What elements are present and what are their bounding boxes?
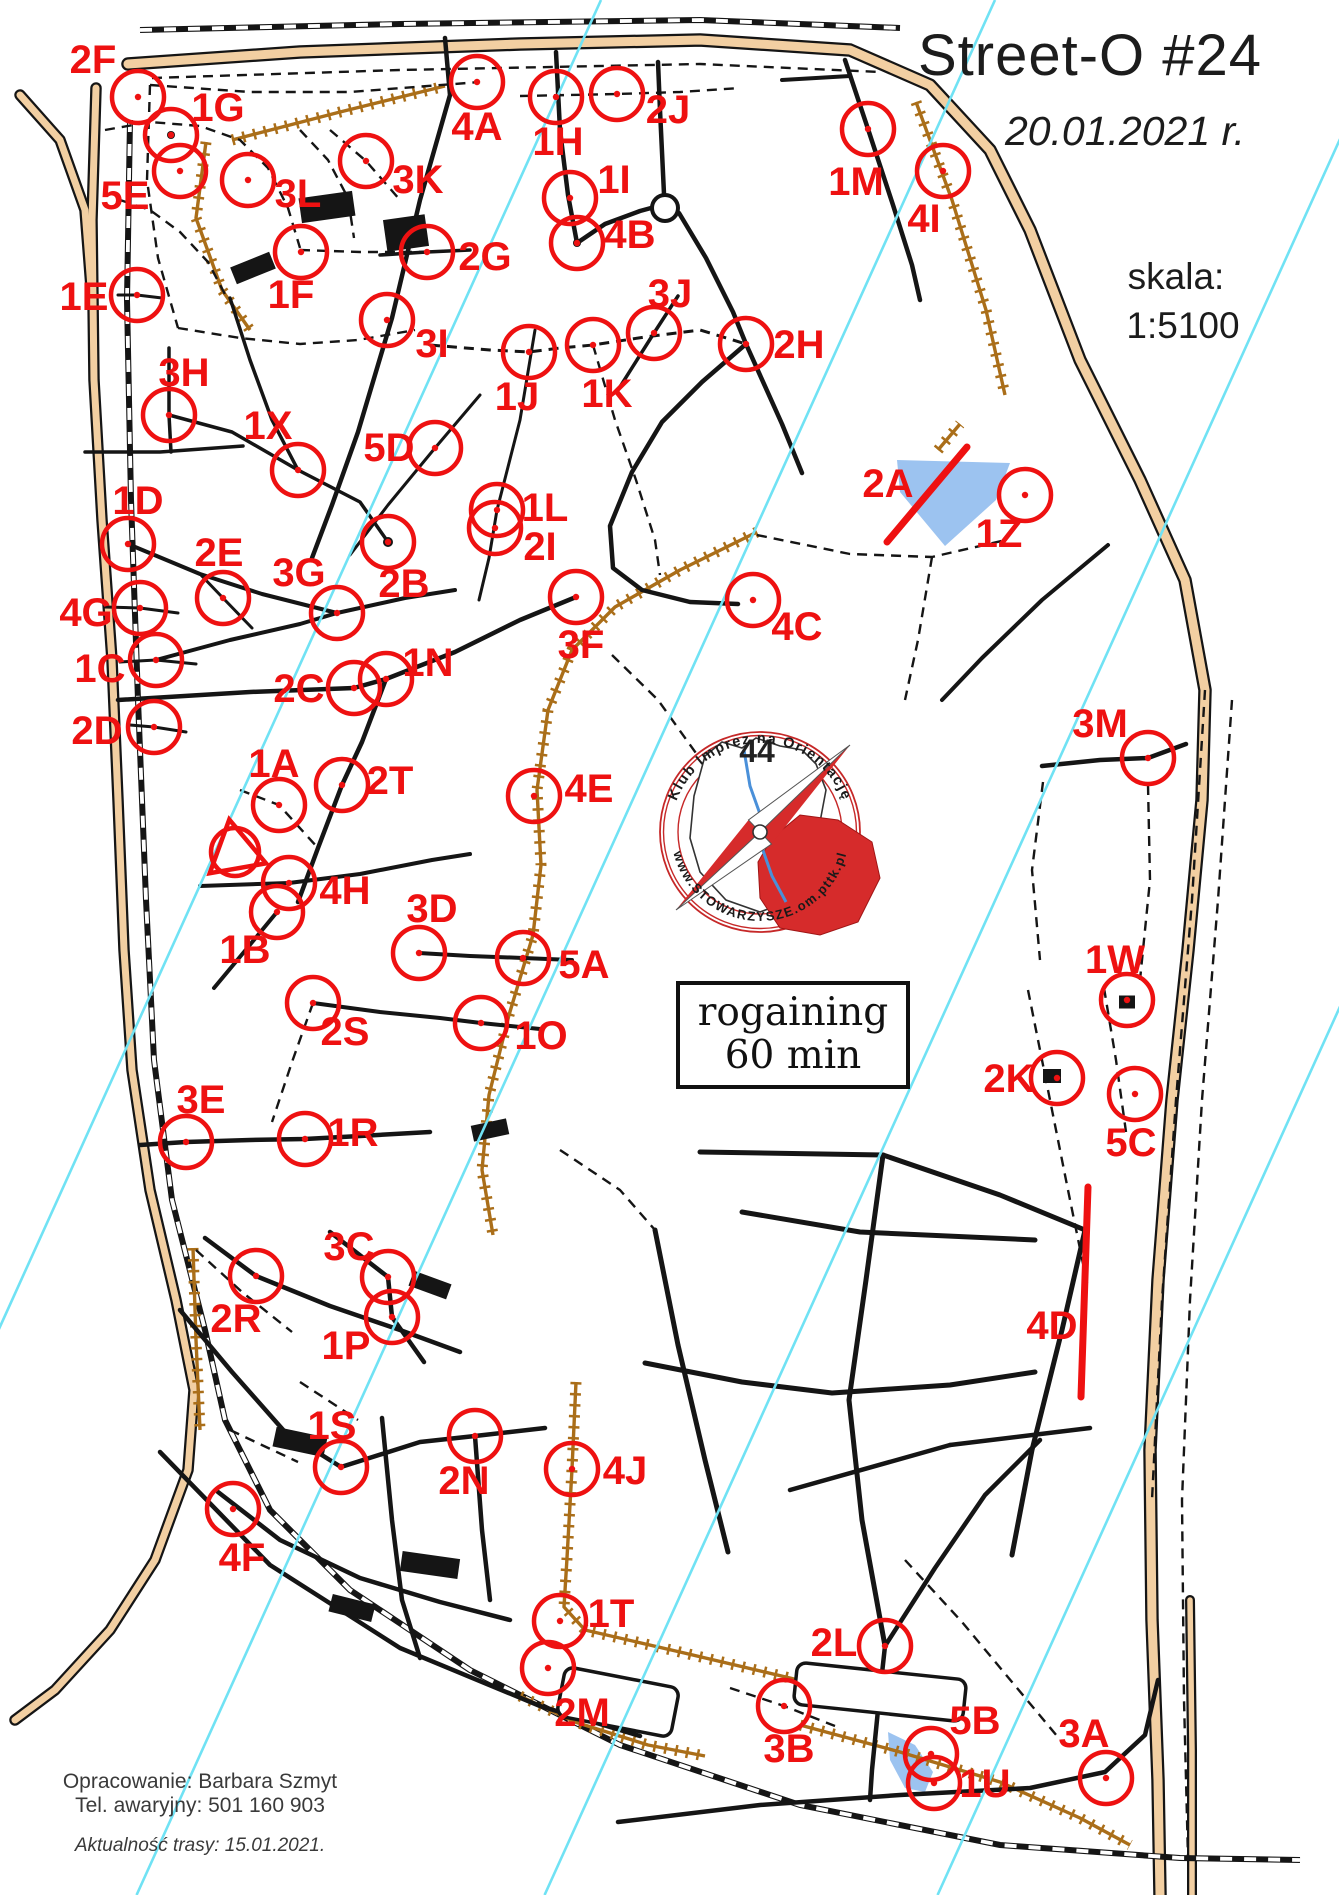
control-label-4E: 4E	[565, 767, 614, 811]
control-label-1D: 1D	[112, 479, 163, 523]
control-dot-4A	[474, 79, 480, 85]
control-dot-3A	[1103, 1775, 1109, 1781]
control-label-2R: 2R	[210, 1297, 261, 1341]
control-label-4H: 4H	[319, 869, 370, 913]
credit-phone: Tel. awaryjny: 501 160 903	[30, 1794, 370, 1818]
control-label-3B: 3B	[763, 1727, 814, 1771]
control-dot-3J	[651, 330, 657, 336]
control-dot-4B	[574, 240, 580, 246]
control-label-3H: 3H	[158, 351, 209, 395]
control-label-1P: 1P	[322, 1324, 371, 1368]
control-dot-3E	[183, 1139, 189, 1145]
control-dot-4G	[137, 605, 143, 611]
control-dot-1F	[298, 249, 304, 255]
control-dot-5E	[177, 168, 183, 174]
control-label-3G: 3G	[272, 551, 325, 595]
control-label-2E: 2E	[195, 531, 244, 575]
control-dot-4C	[750, 597, 756, 603]
control-label-1X: 1X	[244, 404, 293, 448]
control-label-4G: 4G	[59, 591, 112, 635]
control-dot-1X	[295, 467, 301, 473]
control-dot-1M	[865, 126, 871, 132]
control-label-1H: 1H	[532, 120, 583, 164]
control-dot-5A	[520, 955, 526, 961]
control-label-3C: 3C	[323, 1225, 374, 1269]
control-dot-4I	[940, 168, 946, 174]
control-label-2A: 2A	[862, 462, 913, 506]
control-label-2J: 2J	[646, 88, 691, 132]
control-dot-1L	[494, 507, 500, 513]
control-label-1Z: 1Z	[976, 512, 1023, 556]
major-road	[1190, 1600, 1192, 1895]
control-label-1E: 1E	[60, 275, 109, 319]
control-label-2B: 2B	[378, 562, 429, 606]
control-label-3M: 3M	[1072, 702, 1128, 746]
control-dot-1K	[590, 342, 596, 348]
map-date: 20.01.2021 r.	[1005, 108, 1245, 155]
control-label-3E: 3E	[177, 1078, 226, 1122]
control-label-4D: 4D	[1026, 1304, 1077, 1348]
event-format-box: rogaining 60 min	[676, 981, 910, 1089]
control-label-5C: 5C	[1105, 1121, 1156, 1165]
control-label-5D: 5D	[363, 426, 414, 470]
control-label-1M: 1M	[828, 160, 884, 204]
control-label-1W: 1W	[1085, 938, 1145, 982]
control-dot-1D	[125, 541, 131, 547]
control-dot-3G	[334, 610, 340, 616]
control-dot-1U	[931, 1780, 937, 1786]
control-label-2I: 2I	[523, 525, 556, 569]
control-dot-2E	[220, 595, 226, 601]
control-dot-2S	[310, 1000, 316, 1006]
control-dot-2B	[385, 539, 391, 545]
building	[383, 214, 429, 252]
control-label-3A: 3A	[1058, 1712, 1109, 1756]
control-dot-1T	[557, 1618, 563, 1624]
control-dot-1S	[338, 1464, 344, 1470]
control-label-1B: 1B	[219, 928, 270, 972]
control-label-2S: 2S	[321, 1010, 370, 1054]
control-label-1T: 1T	[588, 1592, 635, 1636]
control-dot-2T	[339, 782, 345, 788]
control-dot-1I	[567, 195, 573, 201]
scale-label: skala:	[1128, 256, 1225, 298]
control-label-1O: 1O	[514, 1014, 567, 1058]
control-dot-1W	[1124, 997, 1130, 1003]
control-label-1I: 1I	[597, 158, 630, 202]
control-dot-2H	[743, 341, 749, 347]
street-o-map-page: 44Klub Imprez na Orientacjęwww.STOWARZYS…	[0, 0, 1339, 1895]
control-label-2T: 2T	[367, 759, 414, 803]
control-dot-2N	[472, 1433, 478, 1439]
control-label-3F: 3F	[558, 623, 605, 667]
control-label-4A: 4A	[451, 105, 502, 149]
control-dot-1B	[274, 909, 280, 915]
control-label-2G: 2G	[458, 235, 511, 279]
control-dot-3I	[384, 317, 390, 323]
control-dot-2M	[545, 1665, 551, 1671]
control-label-3J: 3J	[648, 272, 693, 316]
control-dot-1J	[526, 349, 532, 355]
control-dot-2I	[492, 525, 498, 531]
scale-value: 1:5100	[1126, 305, 1239, 347]
control-label-1S: 1S	[308, 1404, 357, 1448]
control-dot-2G	[424, 249, 430, 255]
control-dot-2J	[614, 91, 620, 97]
control-dot-5C	[1132, 1091, 1138, 1097]
control-dot-1Z	[1022, 492, 1028, 498]
control-dot-4H	[286, 880, 292, 886]
control-label-4C: 4C	[771, 605, 822, 649]
control-label-1F: 1F	[268, 273, 315, 317]
control-label-1G: 1G	[191, 86, 244, 130]
control-label-2F: 2F	[70, 38, 117, 82]
control-dot-4F	[230, 1506, 236, 1512]
control-dot-1C	[153, 657, 159, 663]
control-dot-3F	[573, 594, 579, 600]
control-dot-1N	[383, 676, 389, 682]
control-dot-1A	[276, 802, 282, 808]
control-label-1L: 1L	[522, 486, 569, 530]
control-dot-3C	[385, 1274, 391, 1280]
credit-updated: Aktualność trasy: 15.01.2021.	[30, 1835, 370, 1857]
control-label-2L: 2L	[811, 1621, 858, 1665]
control-label-2D: 2D	[71, 709, 122, 753]
control-dot-2R	[253, 1273, 259, 1279]
control-label-4J: 4J	[603, 1449, 648, 1493]
control-label-5B: 5B	[949, 1699, 1000, 1743]
control-label-1R: 1R	[327, 1111, 378, 1155]
credit-author: Opracowanie: Barbara Szmyt	[30, 1770, 370, 1794]
control-label-5A: 5A	[558, 943, 609, 987]
control-dot-3H	[166, 412, 172, 418]
control-label-1N: 1N	[402, 641, 453, 685]
control-label-1A: 1A	[248, 742, 299, 786]
control-label-3L: 3L	[275, 172, 322, 216]
control-dot-3D	[416, 950, 422, 956]
control-label-1J: 1J	[495, 375, 540, 419]
control-label-2K: 2K	[983, 1057, 1034, 1101]
control-dot-2D	[151, 724, 157, 730]
control-label-3K: 3K	[392, 158, 443, 202]
control-dot-1R	[302, 1136, 308, 1142]
control-label-4F: 4F	[219, 1536, 266, 1580]
control-dot-1G	[168, 132, 174, 138]
control-label-1C: 1C	[74, 647, 125, 691]
control-dot-3B	[781, 1703, 787, 1709]
control-dot-2C	[351, 685, 357, 691]
street	[700, 1152, 883, 1155]
control-label-5E: 5E	[101, 174, 150, 218]
control-dot-2L	[882, 1643, 888, 1649]
control-label-3I: 3I	[415, 322, 448, 366]
control-label-2N: 2N	[438, 1459, 489, 1503]
control-label-3D: 3D	[406, 887, 457, 931]
control-dot-3L	[245, 177, 251, 183]
control-dot-1E	[134, 292, 140, 298]
map-title: Street-O #24	[918, 22, 1262, 89]
control-label-1K: 1K	[581, 372, 632, 416]
control-dot-4J	[569, 1466, 575, 1472]
control-label-1U: 1U	[959, 1762, 1010, 1806]
format-name: rogaining	[698, 992, 889, 1035]
control-dot-1H	[553, 94, 559, 100]
control-label-2M: 2M	[554, 1691, 610, 1735]
control-label-4I: 4I	[907, 197, 940, 241]
control-dot-2K	[1054, 1075, 1060, 1081]
control-dot-2F	[135, 94, 141, 100]
footer-credits: Opracowanie: Barbara Szmyt Tel. awaryjny…	[30, 1770, 370, 1857]
control-label-2H: 2H	[773, 323, 824, 367]
control-dot-1P	[389, 1314, 395, 1320]
control-dot-4E	[531, 793, 537, 799]
control-dot-3M	[1145, 755, 1151, 761]
control-dot-1O	[478, 1020, 484, 1026]
control-dot-3K	[363, 158, 369, 164]
format-duration: 60 min	[725, 1035, 862, 1078]
control-dot-5D	[432, 445, 438, 451]
control-label-4B: 4B	[604, 213, 655, 257]
control-label-2C: 2C	[273, 667, 324, 711]
compass-hub	[753, 825, 767, 839]
